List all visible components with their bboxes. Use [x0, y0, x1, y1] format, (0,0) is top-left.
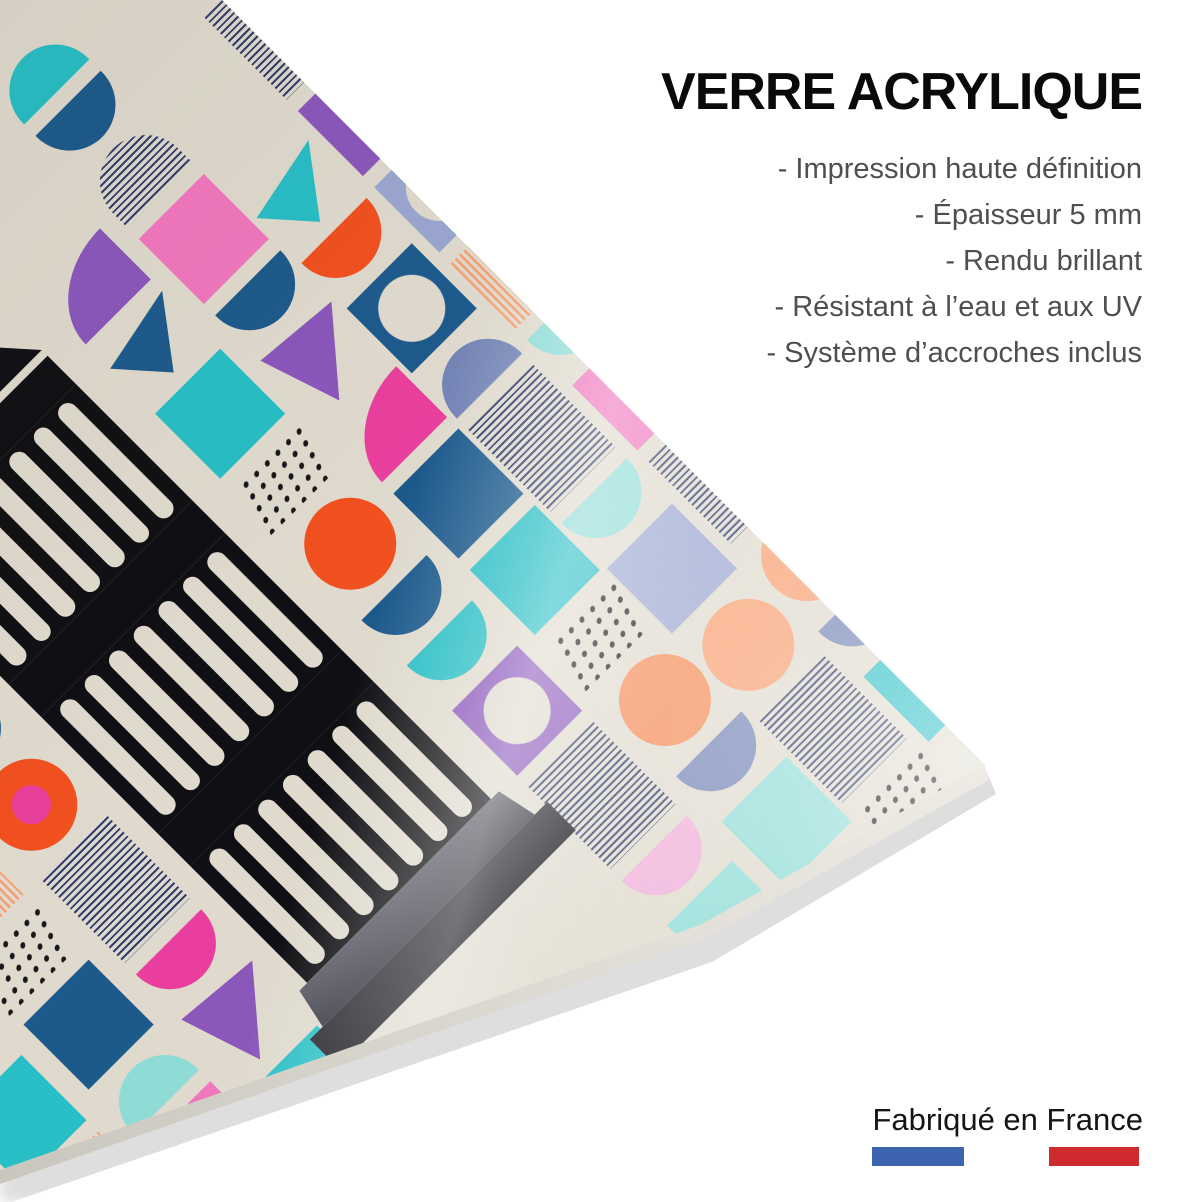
feature-item: - Rendu brillant — [661, 238, 1142, 284]
french-flag — [872, 1147, 1143, 1166]
flag-red-bar — [1049, 1147, 1139, 1166]
art-shape-quarter — [35, 228, 151, 344]
product-mockup-page: VERRE ACRYLIQUE - Impression haute défin… — [0, 0, 1202, 1202]
made-in-france-badge: Fabriqué en France — [872, 1102, 1143, 1166]
feature-item: - Épaisseur 5 mm — [661, 192, 1142, 238]
art-shape-semi-down — [527, 275, 626, 374]
art-shape-hstripes — [222, 1158, 369, 1202]
flag-white-gap — [964, 1147, 1049, 1166]
feature-item: - Système d’accroches inclus — [661, 330, 1142, 376]
art-shape-hstripes — [205, 0, 352, 100]
flag-blue-bar — [872, 1147, 964, 1166]
art-shape-vstripes — [983, 880, 1113, 1010]
art-shape-vstripes — [328, 1102, 458, 1202]
product-info-block: VERRE ACRYLIQUE - Impression haute défin… — [661, 62, 1142, 376]
feature-list: - Impression haute définition- Épaisseur… — [661, 146, 1142, 376]
feature-item: - Résistant à l’eau et aux UV — [661, 284, 1142, 330]
product-title: VERRE ACRYLIQUE — [661, 62, 1142, 122]
made-in-label: Fabriqué en France — [872, 1102, 1143, 1138]
art-shape-vstripes — [743, 937, 873, 1067]
art-shape-semi-down — [818, 566, 917, 665]
feature-item: - Impression haute définition — [661, 146, 1142, 192]
